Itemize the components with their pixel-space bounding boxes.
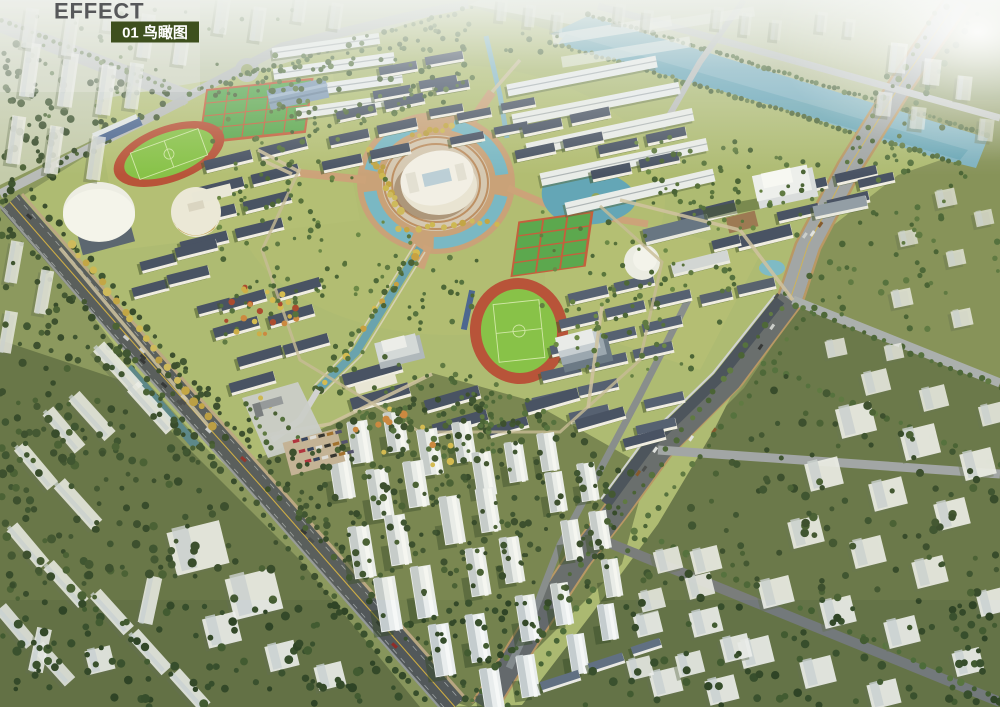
svg-text:01 鸟瞰图: 01 鸟瞰图: [122, 24, 188, 42]
svg-text:EFFECT: EFFECT: [54, 0, 144, 24]
